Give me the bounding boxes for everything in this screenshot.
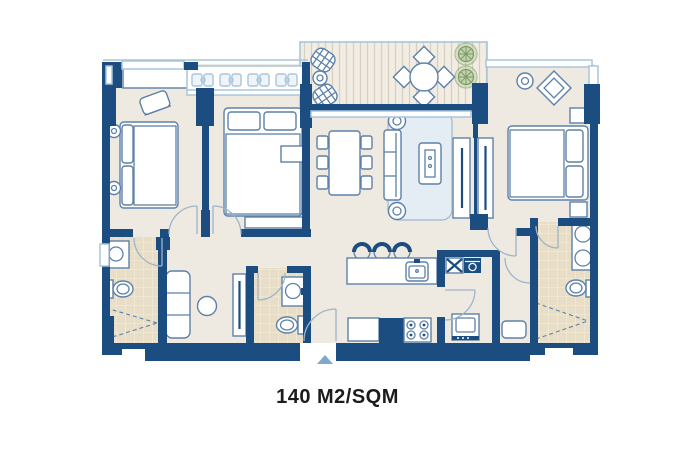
coffee-table-icon — [419, 143, 441, 184]
entrance-arrow-icon — [317, 355, 333, 364]
kitchen-sink-icon — [406, 259, 428, 281]
master-wardrobe-icon — [478, 138, 493, 218]
tv-console-icon — [453, 138, 470, 218]
washer-icon — [464, 258, 481, 273]
area-caption: 140 M2/SQM — [0, 386, 675, 409]
kitchen-counter-icon — [348, 318, 379, 341]
bathroom-2-toilet-icon — [277, 316, 308, 334]
floor-plan-page: 140 M2/SQM — [0, 0, 700, 466]
laundry-sink-icon — [446, 258, 463, 273]
hall-cabinet-icon — [233, 274, 246, 336]
kitchen-counter-dark — [379, 318, 404, 343]
bedroom-2-bed-icon — [224, 108, 303, 216]
bedroom-2-dresser-icon — [245, 217, 305, 228]
hall-bench-icon — [166, 271, 190, 338]
balcony-side-table-icon — [313, 71, 327, 85]
bathroom-2-sink-icon — [282, 277, 306, 306]
hall-basket-icon — [502, 321, 526, 338]
dining-table-icon — [317, 131, 372, 195]
hall-stool-icon — [198, 297, 217, 316]
stove-icon — [404, 318, 431, 342]
sofa-icon — [384, 130, 401, 200]
